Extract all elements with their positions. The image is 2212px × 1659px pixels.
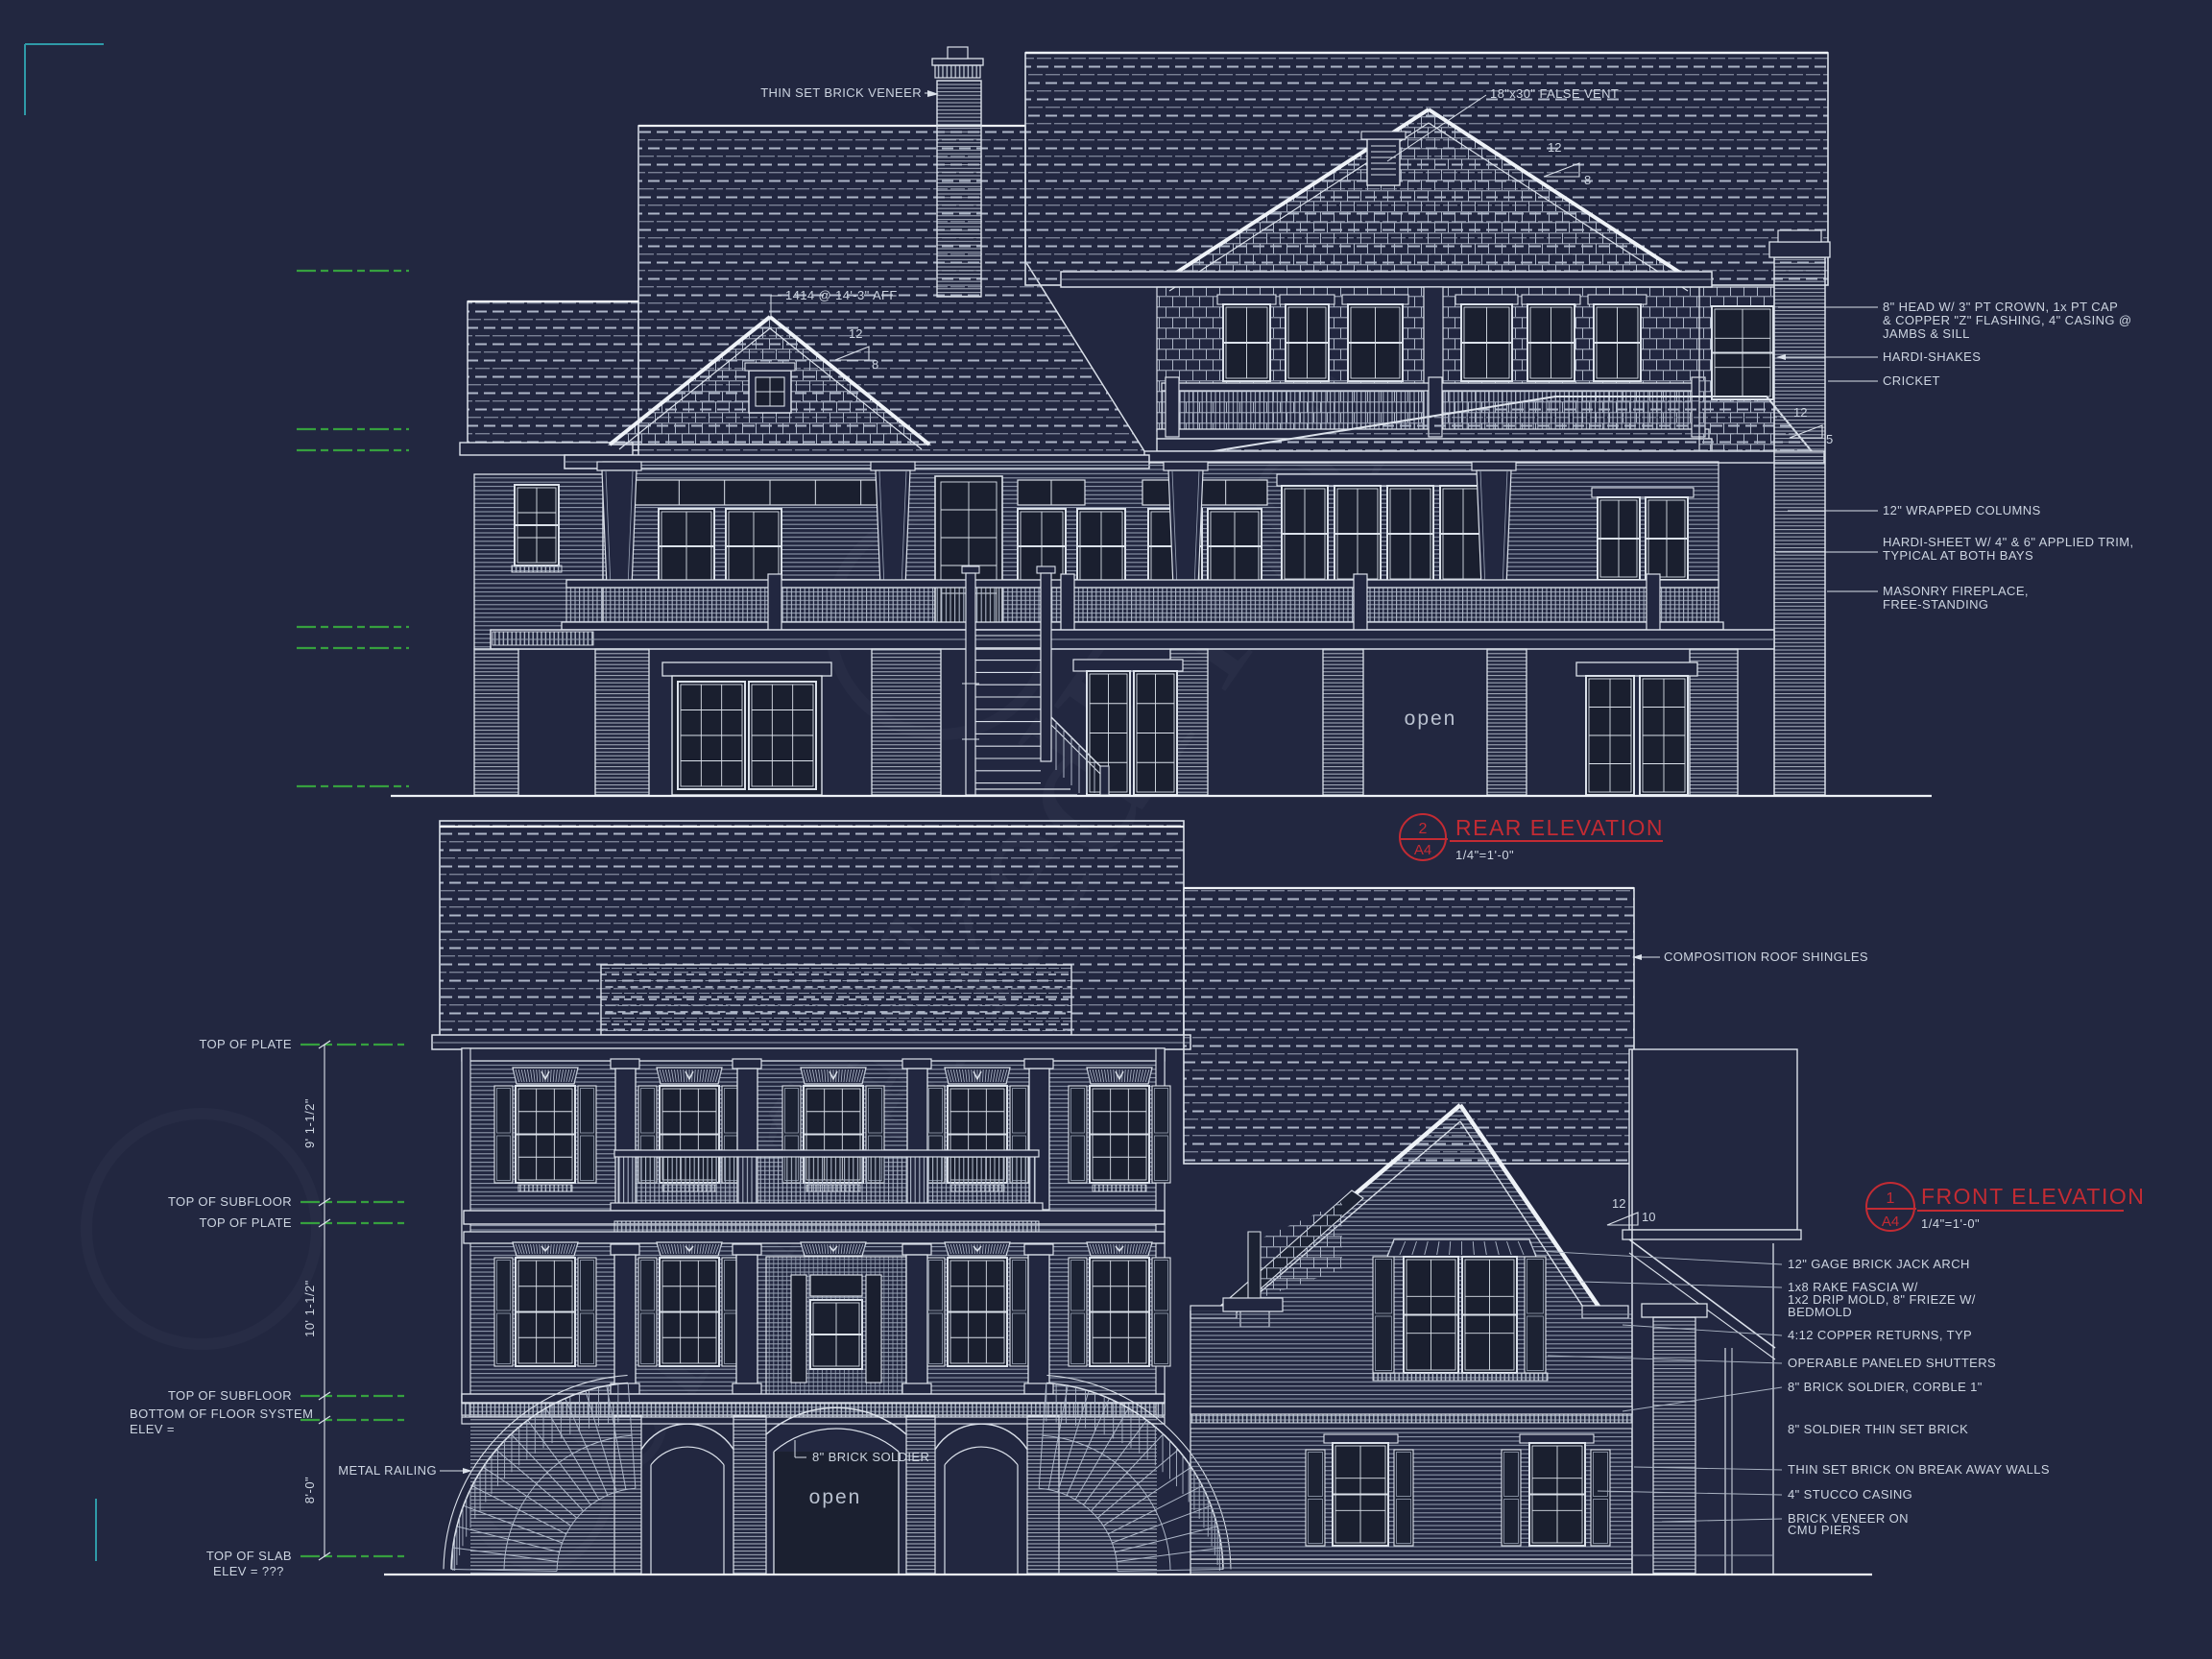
svg-text:JAMBS & SILL: JAMBS & SILL	[1883, 326, 1970, 341]
svg-text:1/4"=1'-0": 1/4"=1'-0"	[1921, 1216, 1980, 1231]
svg-text:THIN SET BRICK ON BREAK AWAY W: THIN SET BRICK ON BREAK AWAY WALLS	[1788, 1462, 2050, 1477]
svg-text:18"x30" FALSE VENT: 18"x30" FALSE VENT	[1490, 86, 1619, 101]
svg-text:12: 12	[849, 326, 862, 341]
svg-text:10: 10	[1642, 1210, 1655, 1224]
svg-text:FREE-STANDING: FREE-STANDING	[1883, 597, 1988, 612]
svg-text:1: 1	[1887, 1190, 1895, 1207]
svg-text:THIN SET BRICK VENEER: THIN SET BRICK VENEER	[760, 85, 922, 100]
svg-text:12: 12	[1793, 405, 1807, 420]
svg-text:8" SOLDIER THIN SET BRICK: 8" SOLDIER THIN SET BRICK	[1788, 1422, 1968, 1436]
svg-text:8" BRICK SOLDIER, CORBLE 1": 8" BRICK SOLDIER, CORBLE 1"	[1788, 1380, 1983, 1394]
svg-text:TOP OF SUBFLOOR: TOP OF SUBFLOOR	[168, 1388, 292, 1403]
svg-text:OPERABLE PANELED SHUTTERS: OPERABLE PANELED SHUTTERS	[1788, 1356, 1996, 1370]
svg-text:BOTTOM OF FLOOR SYSTEM: BOTTOM OF FLOOR SYSTEM	[130, 1407, 313, 1421]
svg-text:8'-0": 8'-0"	[302, 1477, 317, 1503]
svg-text:9' 1-1/2": 9' 1-1/2"	[302, 1098, 317, 1148]
svg-text:& COPPER "Z" FLASHING, 4" CASI: & COPPER "Z" FLASHING, 4" CASING @	[1883, 313, 2132, 327]
svg-text:REAR ELEVATION: REAR ELEVATION	[1455, 815, 1664, 840]
svg-text:TOP OF PLATE: TOP OF PLATE	[199, 1215, 292, 1230]
svg-text:1/4"=1'-0": 1/4"=1'-0"	[1455, 848, 1514, 862]
svg-text:open: open	[1405, 708, 1457, 730]
svg-text:TOP OF PLATE: TOP OF PLATE	[199, 1037, 292, 1051]
svg-text:8: 8	[1584, 173, 1591, 187]
svg-text:ELEV =: ELEV =	[130, 1422, 175, 1436]
svg-text:TOP OF SLAB: TOP OF SLAB	[206, 1549, 292, 1563]
svg-text:MASONRY FIREPLACE,: MASONRY FIREPLACE,	[1883, 584, 2029, 598]
svg-text:4:12 COPPER RETURNS, TYP: 4:12 COPPER RETURNS, TYP	[1788, 1328, 1972, 1342]
svg-text:2: 2	[1419, 821, 1428, 837]
svg-text:COMPOSITION ROOF SHINGLES: COMPOSITION ROOF SHINGLES	[1664, 950, 1868, 964]
svg-text:A4: A4	[1414, 842, 1431, 858]
svg-text:12: 12	[1548, 140, 1561, 155]
svg-text:5: 5	[1826, 432, 1833, 446]
svg-text:ELEV = ???: ELEV = ???	[213, 1564, 284, 1578]
svg-text:METAL RAILING: METAL RAILING	[338, 1463, 437, 1478]
svg-text:BEDMOLD: BEDMOLD	[1788, 1305, 1852, 1319]
svg-text:8" HEAD W/ 3" PT CROWN, 1x PT: 8" HEAD W/ 3" PT CROWN, 1x PT CAP	[1883, 300, 2118, 314]
svg-text:8: 8	[872, 357, 878, 372]
svg-text:FRONT ELEVATION: FRONT ELEVATION	[1921, 1184, 2145, 1209]
svg-text:CMU PIERS: CMU PIERS	[1788, 1523, 1861, 1537]
svg-text:1414 @ 14'-3" AFF: 1414 @ 14'-3" AFF	[785, 288, 898, 302]
svg-text:TYPICAL AT BOTH BAYS: TYPICAL AT BOTH BAYS	[1883, 548, 2033, 563]
svg-text:4" STUCCO CASING: 4" STUCCO CASING	[1788, 1487, 1912, 1502]
svg-text:12" GAGE BRICK JACK ARCH: 12" GAGE BRICK JACK ARCH	[1788, 1257, 1970, 1271]
svg-text:CRICKET: CRICKET	[1883, 373, 1940, 388]
svg-text:TOP OF SUBFLOOR: TOP OF SUBFLOOR	[168, 1194, 292, 1209]
svg-text:HARDI-SHAKES: HARDI-SHAKES	[1883, 349, 1981, 364]
svg-text:HARDI-SHEET W/ 4" & 6" APPLIED: HARDI-SHEET W/ 4" & 6" APPLIED TRIM,	[1883, 535, 2134, 549]
svg-text:10' 1-1/2": 10' 1-1/2"	[302, 1280, 317, 1337]
svg-text:A4: A4	[1882, 1214, 1899, 1230]
svg-text:8" BRICK SOLDIER: 8" BRICK SOLDIER	[812, 1450, 929, 1464]
svg-text:12" WRAPPED COLUMNS: 12" WRAPPED COLUMNS	[1883, 503, 2041, 517]
svg-text:open: open	[809, 1486, 862, 1508]
svg-text:12: 12	[1612, 1196, 1625, 1211]
